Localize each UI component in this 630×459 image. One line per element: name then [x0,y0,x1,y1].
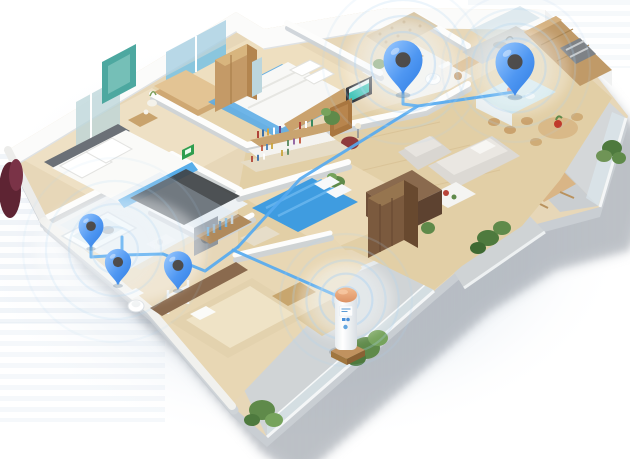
orchid [147,100,157,107]
mirror [252,57,262,97]
stools [521,117,533,125]
scene-canvas [0,0,630,459]
floorplan-illustration [0,0,630,459]
plant-living [421,222,435,234]
hub-orange-top [335,288,357,303]
